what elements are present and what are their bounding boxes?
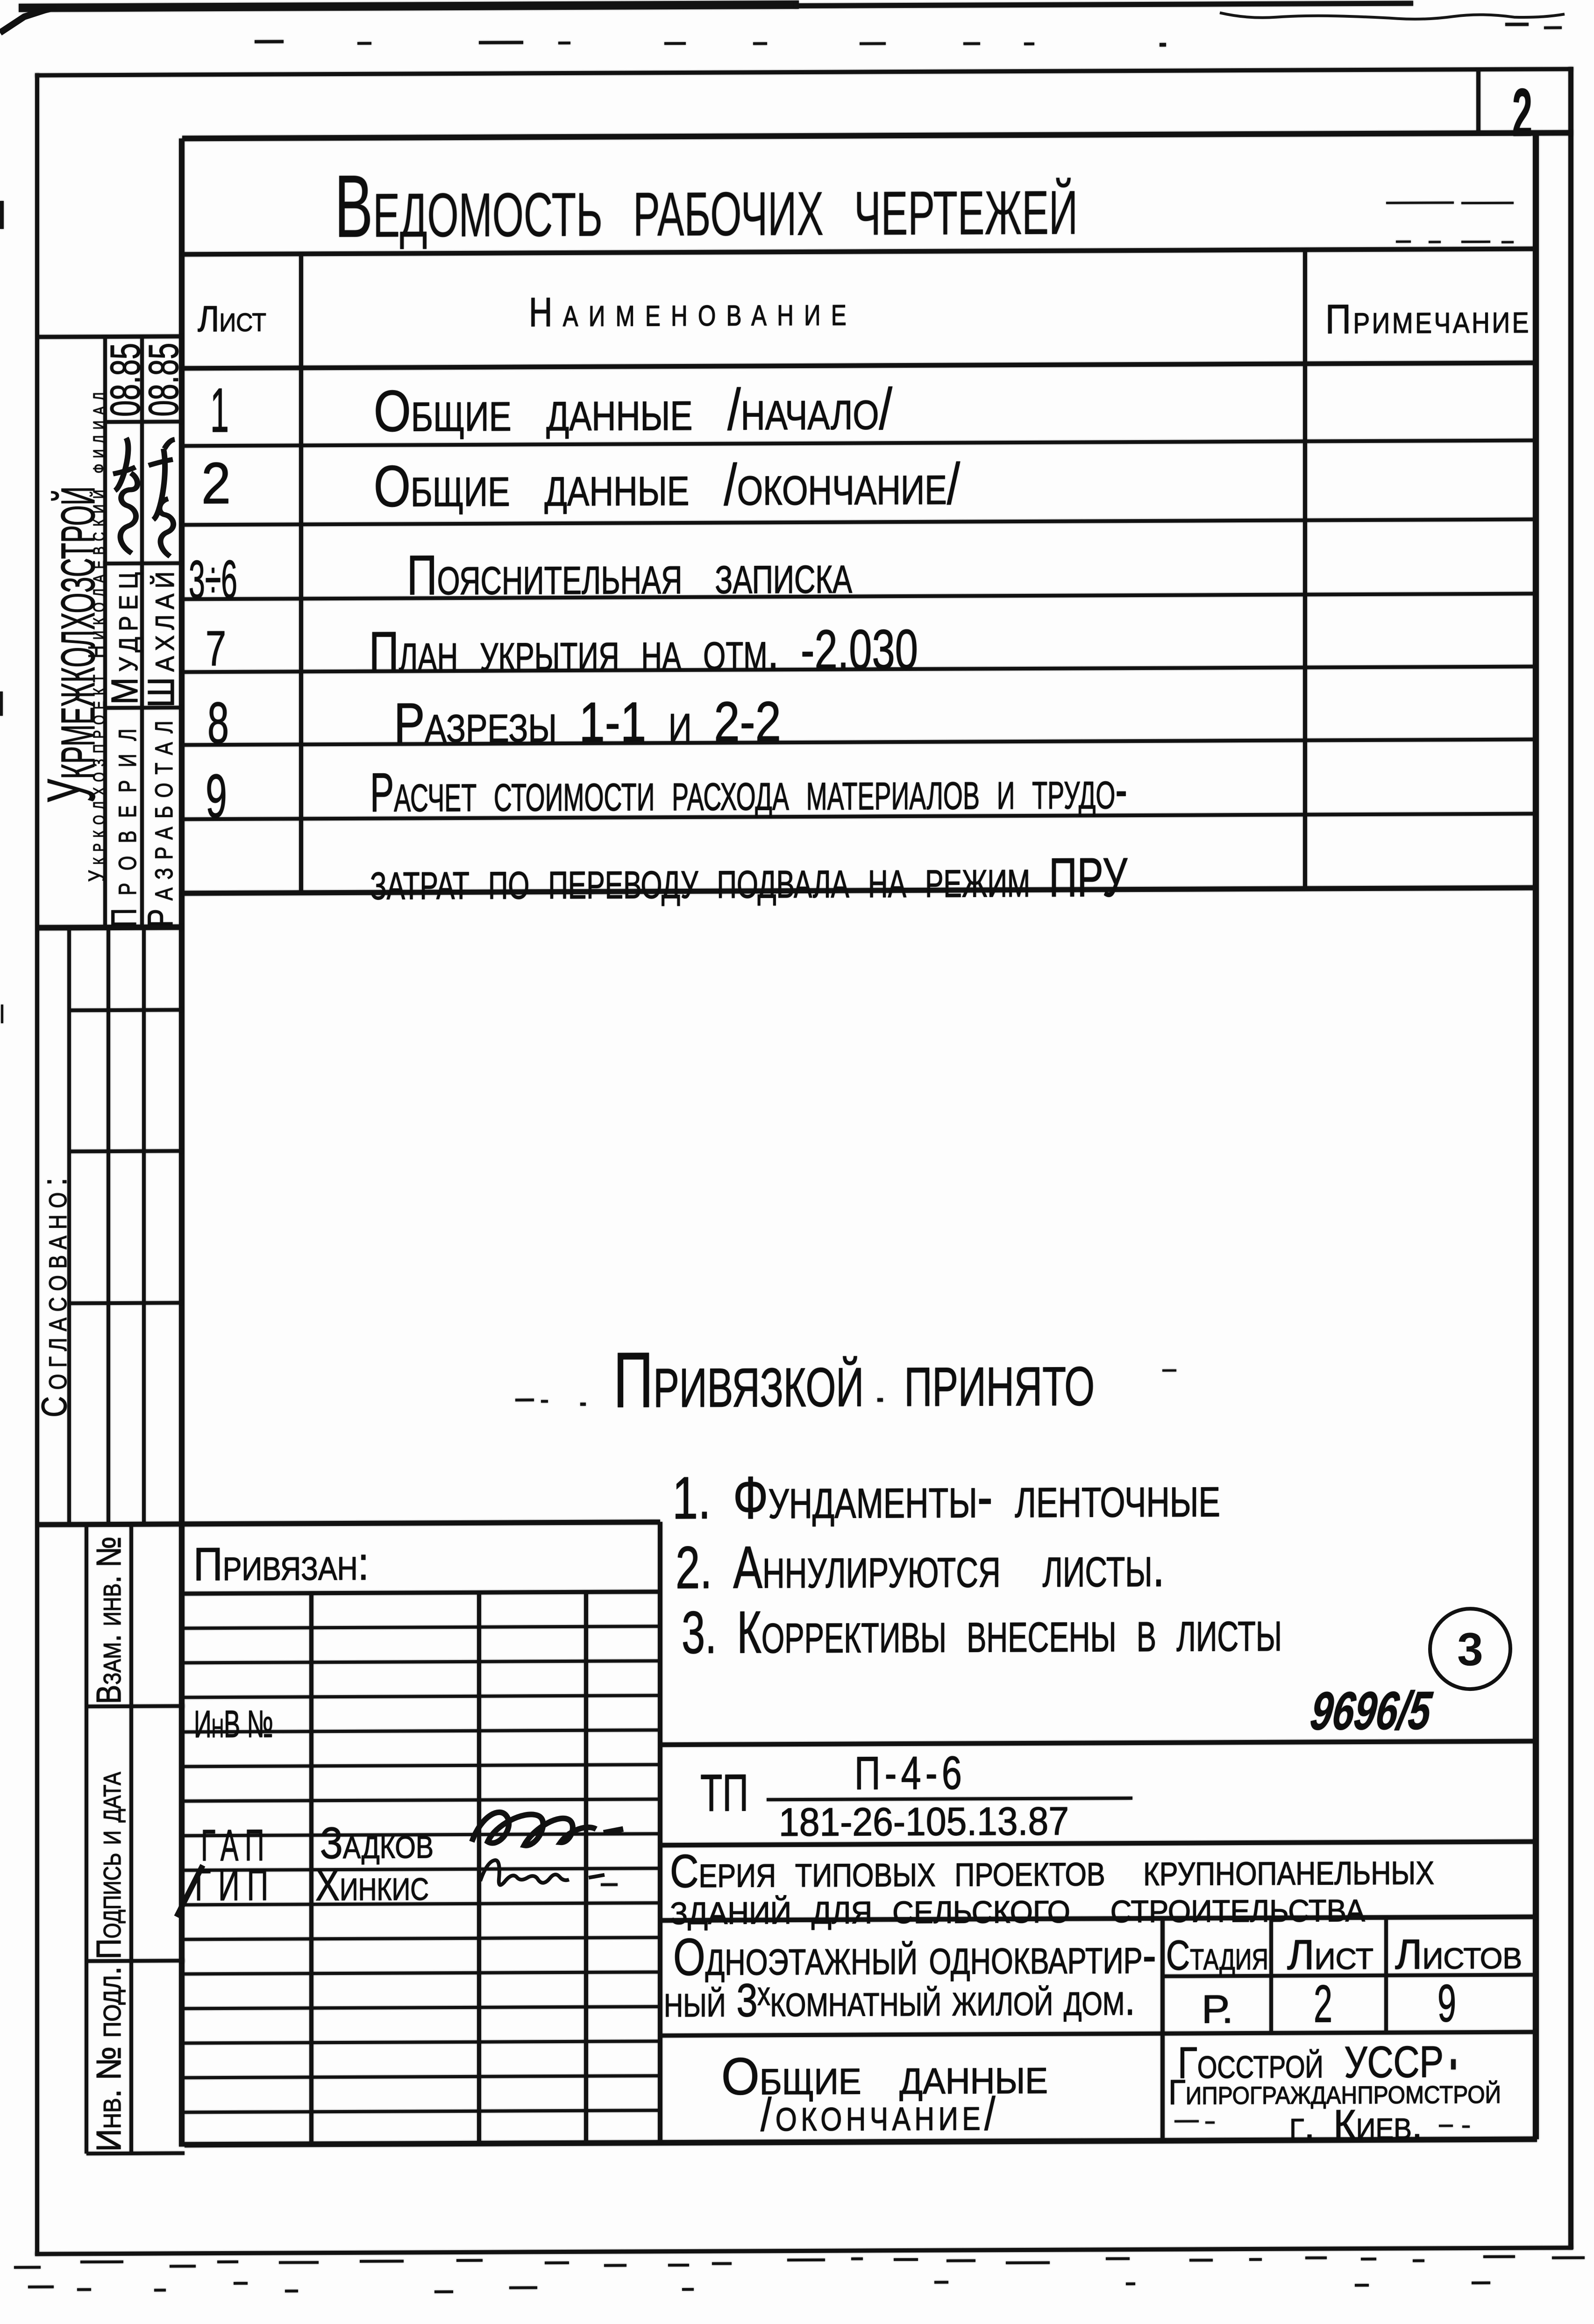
svg-text:3: 3 — [1457, 1623, 1483, 1675]
